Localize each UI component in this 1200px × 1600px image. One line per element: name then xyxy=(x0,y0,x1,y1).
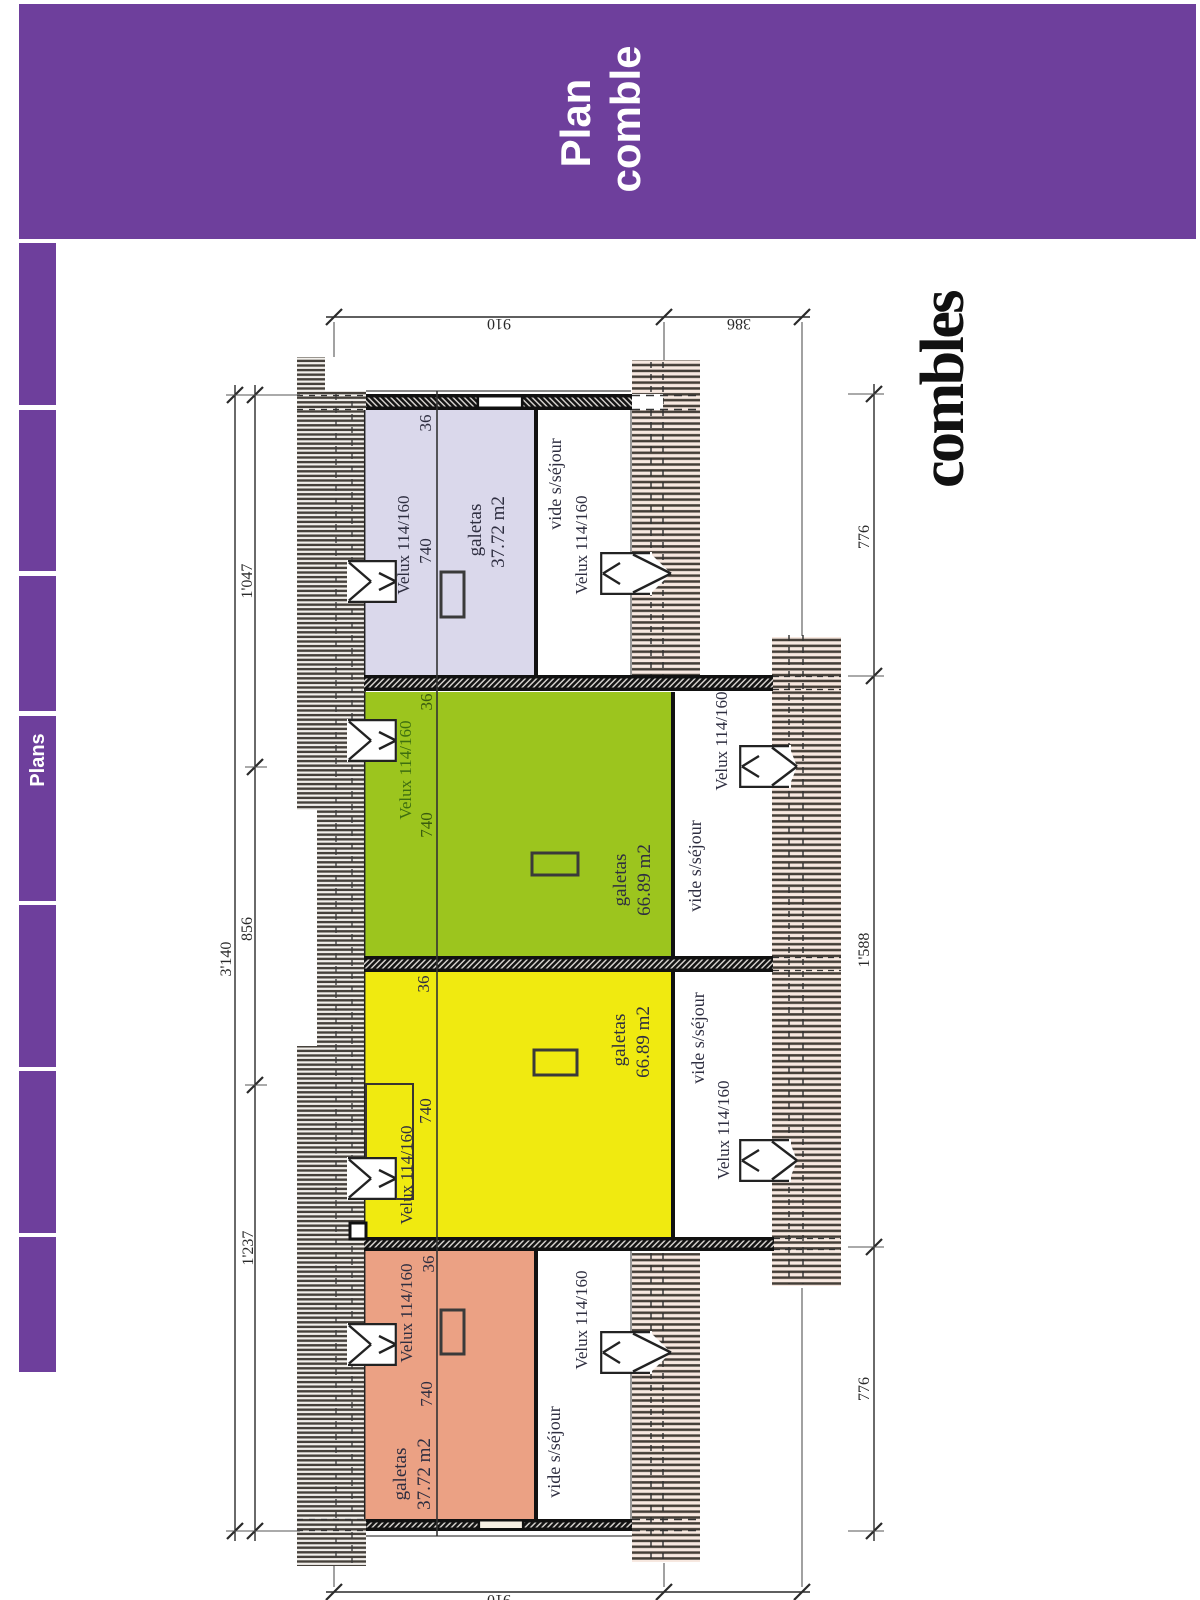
svg-text:vide s/séjour: vide s/séjour xyxy=(688,992,708,1084)
svg-text:galetas: galetas xyxy=(609,1014,630,1067)
svg-text:36: 36 xyxy=(419,1256,438,1273)
svg-text:740: 740 xyxy=(416,1098,435,1124)
svg-text:galetas: galetas xyxy=(610,854,631,907)
svg-text:Velux 114/160: Velux 114/160 xyxy=(397,1125,416,1224)
svg-text:386: 386 xyxy=(727,315,751,332)
svg-text:1'047: 1'047 xyxy=(239,564,256,599)
svg-text:Velux 114/160: Velux 114/160 xyxy=(712,691,731,790)
svg-text:Plans: Plans xyxy=(27,733,49,786)
svg-text:37.72 m2: 37.72 m2 xyxy=(488,496,509,568)
svg-text:1'237: 1'237 xyxy=(240,1231,257,1266)
svg-text:combles: combles xyxy=(909,291,977,488)
svg-text:Velux 114/160: Velux 114/160 xyxy=(572,495,591,594)
svg-text:comble: comble xyxy=(602,45,649,192)
svg-text:galetas: galetas xyxy=(390,1448,411,1501)
svg-text:856: 856 xyxy=(239,917,256,941)
svg-text:vide s/séjour: vide s/séjour xyxy=(544,1406,564,1498)
svg-text:66.89 m2: 66.89 m2 xyxy=(633,1006,654,1078)
svg-text:37.72 m2: 37.72 m2 xyxy=(414,1438,435,1510)
svg-text:36: 36 xyxy=(414,976,433,993)
svg-text:740: 740 xyxy=(416,538,435,564)
svg-text:1'588: 1'588 xyxy=(856,933,873,968)
svg-text:Velux 114/160: Velux 114/160 xyxy=(397,1263,416,1362)
svg-text:36: 36 xyxy=(417,694,436,711)
svg-text:vide s/séjour: vide s/séjour xyxy=(685,820,705,912)
svg-text:740: 740 xyxy=(417,812,436,838)
svg-text:776: 776 xyxy=(856,525,873,549)
svg-text:Velux 114/160: Velux 114/160 xyxy=(394,495,413,594)
svg-text:740: 740 xyxy=(417,1381,436,1407)
svg-text:Velux 114/160: Velux 114/160 xyxy=(714,1080,733,1179)
svg-text:vide s/séjour: vide s/séjour xyxy=(545,438,565,530)
svg-text:910: 910 xyxy=(487,1591,511,1600)
svg-text:Plan: Plan xyxy=(552,79,599,168)
svg-text:910: 910 xyxy=(487,315,511,332)
svg-text:Velux 114/160: Velux 114/160 xyxy=(572,1270,591,1369)
svg-text:36: 36 xyxy=(416,415,435,432)
svg-text:776: 776 xyxy=(856,1377,873,1401)
svg-text:galetas: galetas xyxy=(465,504,486,557)
svg-text:3'140: 3'140 xyxy=(218,942,235,977)
svg-text:Velux 114/160: Velux 114/160 xyxy=(396,720,415,819)
svg-text:66.89 m2: 66.89 m2 xyxy=(634,844,655,916)
